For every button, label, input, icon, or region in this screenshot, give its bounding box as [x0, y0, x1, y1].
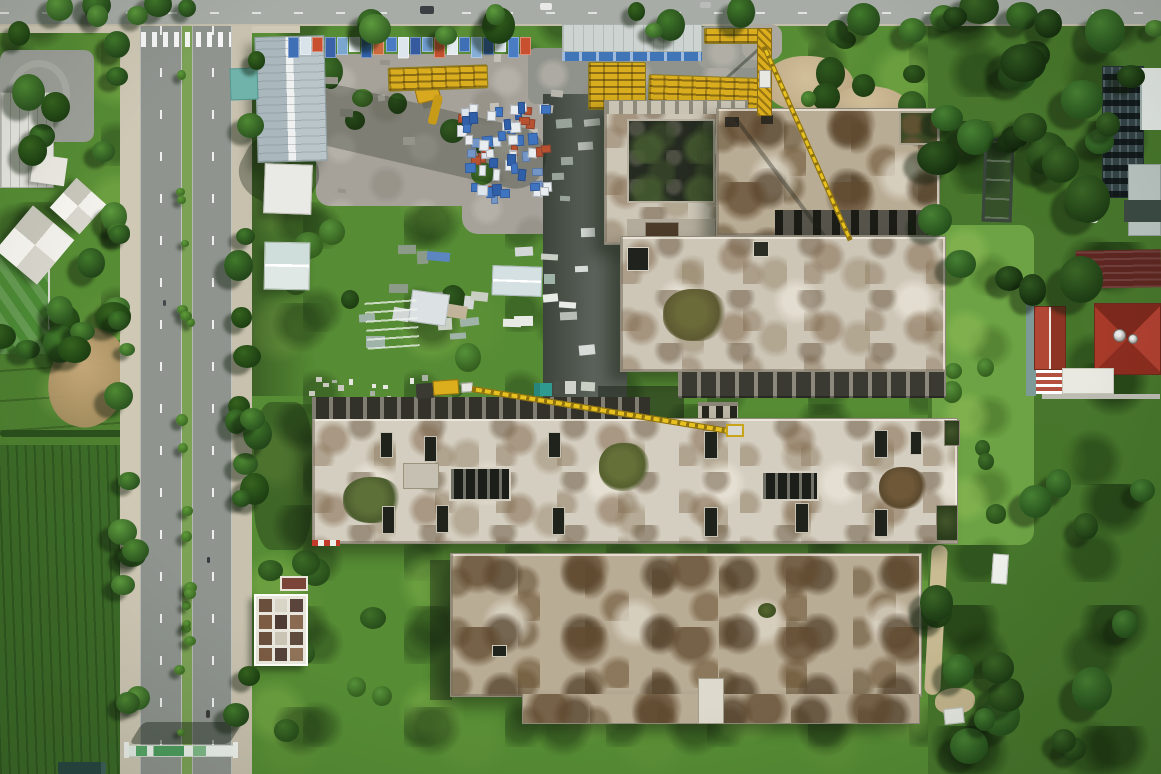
tree	[116, 692, 140, 714]
fence-banner-segment	[410, 37, 421, 55]
ground-mark	[349, 379, 353, 385]
ground-mark	[338, 385, 344, 391]
building-south-slab	[450, 553, 922, 697]
tree	[224, 250, 253, 280]
shrub	[903, 65, 924, 84]
fence-banner-segment	[288, 37, 299, 58]
roof-shaft-opening	[874, 430, 888, 458]
tree	[957, 119, 994, 155]
tree	[15, 340, 39, 360]
roadside-pallet	[583, 118, 599, 126]
median-tree	[176, 188, 184, 196]
motorbike	[206, 710, 210, 718]
portable-toilet	[534, 383, 552, 396]
stored-material	[389, 284, 408, 293]
roof-opening	[761, 471, 819, 501]
tree	[8, 21, 30, 46]
tree	[104, 382, 133, 410]
tree	[248, 51, 265, 69]
fence-banner-segment	[300, 37, 311, 55]
tree	[899, 18, 926, 43]
building-block-center	[620, 236, 946, 372]
fence-banner-segment	[459, 37, 470, 52]
shrub	[945, 363, 961, 379]
ground-mark	[370, 391, 375, 396]
tree	[1145, 20, 1161, 36]
pallet-stack	[541, 145, 551, 154]
roof-shaft-opening	[795, 503, 809, 533]
shrub	[360, 607, 387, 629]
pallet-stack	[488, 158, 497, 168]
tree	[12, 74, 45, 111]
roof-shaft-opening	[874, 509, 888, 537]
fence-banner-segment	[471, 37, 482, 58]
tank-cell	[290, 648, 303, 661]
white-flat-roof	[1062, 368, 1114, 394]
small-rooftop-box	[403, 463, 439, 489]
tree	[950, 728, 988, 764]
hedge-line	[0, 430, 124, 437]
crane-cab	[759, 70, 771, 88]
arcade-facade-strip	[678, 372, 946, 398]
tree	[77, 248, 105, 278]
pallet-stack	[463, 124, 471, 134]
tank-grid-structure	[254, 594, 308, 666]
crosswalk	[141, 32, 231, 47]
gravel-speck	[378, 95, 386, 102]
pallet-stack	[540, 105, 551, 114]
pallet-stack	[479, 165, 487, 176]
tree	[917, 141, 959, 175]
vehicle	[420, 6, 434, 14]
stored-material	[397, 244, 415, 254]
aerial-photo	[0, 0, 1161, 774]
yellow-formwork-stack	[388, 64, 489, 91]
tree	[1130, 479, 1155, 502]
tree	[18, 135, 47, 166]
open-courtyard	[627, 119, 715, 203]
roof-shaft-opening	[552, 507, 565, 535]
pallet-stack	[477, 185, 488, 197]
median-tree	[184, 636, 196, 646]
median-tree	[177, 196, 185, 204]
tower-crane-base	[415, 375, 474, 401]
tree	[918, 204, 952, 236]
ground-mark	[316, 377, 323, 382]
shrub	[274, 719, 299, 741]
building-block-northeast	[716, 108, 940, 236]
median-tree	[177, 729, 185, 736]
white-shed	[263, 163, 313, 215]
tree	[920, 585, 954, 620]
tank-cell	[259, 632, 272, 645]
moss-patch	[879, 467, 927, 509]
pallet-stack	[464, 162, 475, 172]
tree	[1061, 80, 1103, 120]
fence-banner-segment	[520, 37, 531, 55]
roadside-pallet	[561, 157, 574, 166]
highrise-building	[1102, 66, 1161, 242]
gravel-speck	[324, 77, 337, 84]
stored-material	[544, 274, 555, 284]
tree	[945, 250, 975, 278]
tank-cell	[275, 648, 288, 661]
tree	[1000, 44, 1046, 82]
pallet-stack	[510, 163, 518, 174]
tree	[435, 26, 457, 45]
roof-planter	[936, 505, 958, 541]
tank-cell	[290, 615, 303, 628]
tree	[127, 6, 148, 25]
tree	[92, 141, 115, 162]
gate-post	[124, 742, 129, 758]
gravel-speck	[403, 137, 415, 145]
tree	[943, 7, 967, 27]
crane-jib-tip	[726, 424, 744, 437]
shrub	[319, 219, 345, 245]
pallet-stack	[467, 149, 477, 158]
roof-planter	[944, 420, 960, 446]
tree	[238, 666, 260, 686]
shrub	[455, 343, 480, 372]
fence-banner-segment	[312, 37, 323, 52]
tank-cell	[259, 615, 272, 628]
roof-shaft-opening	[382, 506, 395, 534]
fence-banner-segment	[386, 37, 397, 52]
median-tree	[182, 506, 193, 515]
greenhouse-frames	[364, 298, 419, 350]
fence-banner-segment	[508, 37, 519, 58]
motorbike	[207, 557, 210, 563]
gate-post	[233, 742, 238, 758]
tree	[122, 539, 149, 562]
shrub	[341, 290, 359, 309]
roadside-pallet	[541, 253, 558, 260]
tank-cell	[259, 648, 272, 661]
left-field-lower	[0, 445, 124, 774]
water-tank	[1113, 329, 1126, 342]
pallet-stack	[530, 183, 540, 192]
tree	[1059, 256, 1103, 302]
teal-shed	[229, 68, 258, 101]
crane-counterweight	[432, 379, 459, 396]
tank-cell	[259, 599, 272, 612]
roof-shaft-opening	[753, 241, 769, 257]
fence-banner-segment	[337, 37, 348, 55]
tree	[231, 307, 251, 328]
roof-shaft-opening	[380, 432, 393, 458]
roof-shaft-opening	[424, 436, 437, 462]
boulevard-lane-east	[192, 26, 232, 774]
facade-window-strip	[775, 210, 929, 236]
roadside-pallet	[560, 311, 577, 320]
shrub	[986, 504, 1007, 523]
gravel-speck	[551, 89, 563, 97]
tree	[1073, 513, 1098, 540]
building-long-wing	[312, 418, 958, 544]
moss-dome	[758, 603, 776, 618]
vehicle	[700, 2, 711, 8]
red-gable-roof	[1034, 306, 1066, 370]
moss-patch	[663, 289, 727, 341]
white-container	[991, 553, 1009, 584]
gravel-speck	[380, 60, 391, 66]
tree	[1019, 274, 1047, 306]
tree	[847, 3, 880, 36]
gravel-speck	[340, 109, 354, 118]
pallet-stack	[500, 189, 510, 198]
tree	[1072, 667, 1112, 711]
fence-banner-segment	[422, 37, 433, 52]
tank-cell	[275, 615, 288, 628]
pallet-stack	[540, 187, 549, 197]
tree	[236, 228, 255, 245]
shrub	[812, 83, 840, 110]
pallet-stack	[508, 135, 519, 146]
roof-opening	[449, 467, 511, 501]
tree	[232, 490, 250, 507]
tree	[1112, 610, 1138, 638]
shrub	[977, 358, 994, 377]
fence-banner-segment	[349, 37, 360, 52]
small-red-structure	[280, 576, 308, 591]
tree	[359, 14, 390, 44]
red-white-barrier	[312, 540, 340, 546]
roadside-pallet	[575, 266, 588, 273]
water-tank	[1128, 334, 1138, 344]
tree	[974, 708, 995, 732]
tree	[108, 311, 129, 330]
roadside-pallet	[579, 344, 596, 355]
parked-truck	[58, 762, 106, 774]
shrub	[801, 91, 816, 107]
roof-shaft-opening	[704, 507, 718, 537]
tank-cell	[275, 599, 288, 612]
tree	[47, 296, 73, 324]
striped-roof-section	[1036, 370, 1062, 394]
awning-band	[1124, 200, 1161, 222]
median-tree	[180, 311, 192, 321]
roof-shaft-opening	[436, 505, 449, 533]
ground-mark	[309, 391, 315, 396]
motorbike	[163, 300, 166, 306]
median-tree	[184, 588, 195, 600]
boundary-wall	[1042, 394, 1160, 399]
tank-cell	[290, 599, 303, 612]
roadside-pallet	[581, 228, 596, 238]
storage-shed	[491, 265, 542, 297]
roadside-pallet	[581, 382, 595, 391]
pallet-stack	[518, 168, 527, 180]
fence-banner-segment	[398, 37, 409, 58]
roof-shaft-opening	[548, 432, 561, 458]
median-tree	[176, 414, 188, 426]
boulevard-lane-west	[140, 26, 182, 774]
roof-notch	[698, 678, 724, 724]
tree	[240, 408, 265, 430]
pallet-stack	[518, 102, 526, 114]
pallet-stack	[492, 169, 500, 181]
tree	[486, 4, 505, 25]
gate-shadow	[129, 722, 243, 744]
pallet-stack	[532, 168, 543, 177]
fence-banner-segment	[325, 37, 336, 58]
ground-mark	[332, 380, 337, 383]
tree	[943, 654, 975, 687]
stored-material	[515, 246, 533, 256]
tree	[237, 113, 264, 138]
yellow-formwork-stack	[704, 28, 760, 44]
shrub	[292, 550, 320, 576]
median-tree	[181, 531, 192, 542]
pallet-stack	[487, 110, 496, 120]
shrub	[347, 677, 366, 696]
pallet-stack	[479, 139, 490, 150]
roadside-pallet	[556, 118, 573, 128]
stored-material	[450, 332, 467, 340]
ground-mark	[372, 384, 376, 388]
tree	[111, 575, 135, 595]
pallet-stack	[503, 119, 511, 131]
boulevard-median	[182, 26, 192, 774]
ground-mark	[323, 383, 328, 387]
site-gate-banner	[126, 745, 238, 757]
tank-cell	[290, 632, 303, 645]
gravel-speck	[494, 54, 502, 62]
roof-shaft-opening	[761, 115, 773, 124]
stored-material	[503, 318, 521, 327]
shrub	[372, 686, 392, 706]
roof-shaft-opening	[910, 431, 922, 455]
pallet-stack	[465, 135, 473, 145]
stored-material	[542, 293, 558, 302]
pallet-stack	[527, 133, 538, 146]
tree	[223, 703, 250, 726]
tree	[1117, 65, 1145, 88]
tree	[109, 225, 130, 245]
small-sheds	[264, 242, 311, 291]
tree	[1065, 175, 1110, 222]
pallet-stack	[469, 112, 478, 124]
roof-shaft-opening	[627, 247, 649, 271]
shrub	[826, 20, 848, 44]
shrub	[978, 453, 993, 470]
roof-shaft-opening	[704, 431, 718, 459]
tree	[1085, 9, 1125, 53]
roof-shaft-opening	[725, 117, 739, 127]
tree	[41, 92, 70, 122]
median-tree	[181, 240, 189, 247]
red-hip-roof	[1094, 303, 1161, 375]
tree	[58, 336, 91, 363]
blue-fence	[562, 52, 702, 61]
white-container	[943, 707, 965, 725]
roadside-pallet	[560, 196, 570, 202]
tank-cell	[275, 632, 288, 645]
vehicle	[540, 3, 552, 10]
roadside-pallet	[577, 141, 592, 150]
ground-mark	[410, 378, 415, 384]
roadside-pallet	[552, 173, 564, 181]
tree	[1013, 113, 1047, 143]
tree	[982, 652, 1014, 683]
site-box	[554, 381, 576, 394]
tree	[987, 681, 1024, 712]
roof-shaft-opening	[492, 645, 507, 657]
moss-patch	[599, 443, 649, 491]
tree	[118, 472, 140, 490]
ground-mark	[383, 385, 388, 389]
shrub	[852, 74, 875, 97]
pallet-stack	[498, 130, 507, 140]
